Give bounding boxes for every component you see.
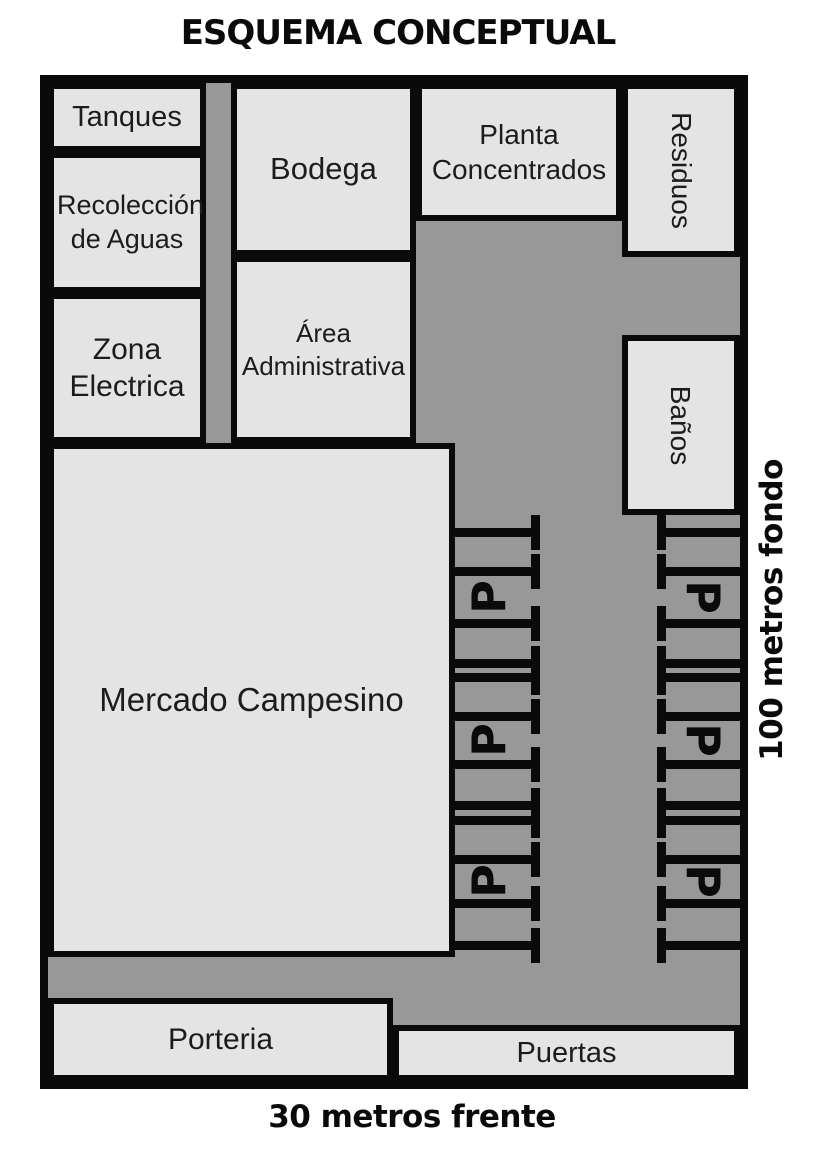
- front-dimension-label: 30 metros frente: [268, 1099, 556, 1135]
- room-puertas: Puertas: [393, 1025, 740, 1081]
- room-planta-concentrados-label: Planta Concentrados: [429, 117, 609, 187]
- room-residuos-label: Residuos: [664, 112, 699, 229]
- parking-p-symbol: P: [467, 718, 511, 762]
- parking-p-symbol: P: [681, 718, 725, 762]
- room-recoleccion-de-aguas: Recolección de Aguas: [48, 152, 206, 293]
- parking-stall-line: [449, 816, 540, 825]
- parking-stall-line: [449, 619, 540, 628]
- parking-stall-line: [657, 528, 740, 537]
- room-recoleccion-label: Recolección de Aguas: [57, 189, 197, 257]
- room-zona-electrica: Zona Electrica: [48, 293, 206, 443]
- parking-stall-line: [657, 659, 740, 668]
- parking-stall-line: [449, 801, 540, 810]
- parking-p-symbol: P: [681, 859, 725, 903]
- parking-stall-line: [657, 619, 740, 628]
- parking-p-symbol: P: [467, 575, 511, 619]
- parking-stall-line: [657, 673, 740, 682]
- parking-p-symbol: P: [467, 859, 511, 903]
- room-residuos: Residuos: [622, 83, 740, 257]
- parking-stall-line: [449, 659, 540, 668]
- room-porteria: Porteria: [48, 998, 393, 1081]
- room-bodega: Bodega: [231, 83, 416, 256]
- room-banos: Baños: [622, 335, 740, 515]
- parking-stall-line: [657, 816, 740, 825]
- room-puertas-label: Puertas: [517, 1035, 617, 1071]
- parking-stall-line: [449, 673, 540, 682]
- room-bodega-label: Bodega: [270, 150, 377, 189]
- room-banos-label: Baños: [664, 385, 699, 464]
- parking-stall-line: [657, 801, 740, 810]
- page: ESQUEMA CONCEPTUAL Tanques Recolección d…: [0, 0, 828, 1171]
- room-mercado-campesino-label: Mercado Campesino: [99, 679, 403, 720]
- room-zona-electrica-label: Zona Electrica: [62, 331, 192, 406]
- parking-p-symbol: P: [681, 575, 725, 619]
- room-area-administrativa-label: Área Administrativa: [239, 317, 409, 382]
- room-mercado-campesino: Mercado Campesino: [48, 443, 455, 957]
- room-tanques-label: Tanques: [72, 99, 182, 135]
- parking-stall-line: [657, 941, 740, 950]
- room-area-administrativa: Área Administrativa: [231, 256, 416, 443]
- room-porteria-label: Porteria: [168, 1021, 273, 1059]
- room-tanques: Tanques: [48, 83, 206, 152]
- parking-stall-line: [449, 941, 540, 950]
- depth-dimension-label: 100 metros fondo: [754, 459, 790, 761]
- room-planta-concentrados: Planta Concentrados: [416, 83, 622, 221]
- site-plan: Tanques Recolección de Aguas Zona Electr…: [40, 75, 748, 1089]
- page-title: ESQUEMA CONCEPTUAL: [181, 13, 616, 53]
- parking-stall-line: [449, 528, 540, 537]
